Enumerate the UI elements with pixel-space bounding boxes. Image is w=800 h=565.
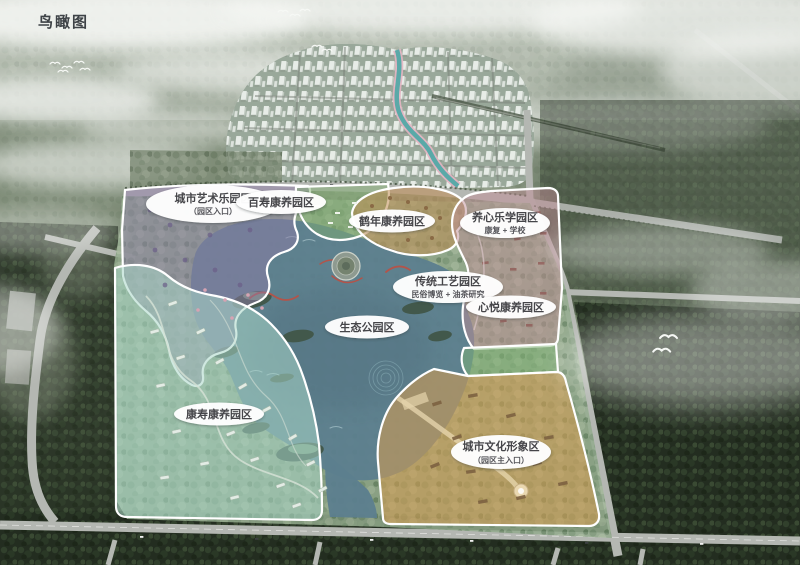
zone-subtitle: 康复 + 学校 bbox=[484, 225, 526, 235]
zone-label-baishou: 百寿康养园区 bbox=[236, 190, 326, 214]
masterplan-aerial-view: 城市艺术乐园区 （园区入口） 百寿康养园区 鹤年康养园区 养心乐学园区 康复 +… bbox=[0, 0, 800, 565]
zone-name: 城市文化形象区 bbox=[463, 439, 540, 453]
birdseye-rendering: 城市艺术乐园区 （园区入口） 百寿康养园区 鹤年康养园区 养心乐学园区 康复 +… bbox=[0, 0, 800, 565]
amphitheater-island bbox=[332, 252, 360, 280]
zone-label-xinyue: 心悦康养园区 bbox=[466, 296, 556, 319]
zone-name: 传统工艺园区 bbox=[414, 274, 481, 288]
zone-subtitle: 民俗博览 + 油茶研究 bbox=[411, 289, 484, 299]
zone-label-kangshou: 康寿康养园区 bbox=[174, 403, 264, 426]
zone-label-shengtai: 生态公园区 bbox=[325, 316, 409, 339]
zone-label-wenhua: 城市文化形象区 （园区主入口） bbox=[451, 435, 551, 469]
zone-name: 康寿康养园区 bbox=[186, 407, 252, 421]
zone-name: 心悦康养园区 bbox=[478, 300, 544, 314]
zone-label-yangxin: 养心乐学园区 康复 + 学校 bbox=[460, 208, 550, 238]
zone-subtitle: （园区入口） bbox=[189, 206, 237, 216]
zone-label-henian: 鹤年康养园区 bbox=[349, 210, 435, 233]
zone-name: 鹤年康养园区 bbox=[359, 214, 425, 228]
page-title: 鸟瞰图 bbox=[38, 13, 89, 31]
road-city-east bbox=[527, 110, 530, 200]
zone-name: 百寿康养园区 bbox=[248, 195, 314, 209]
zone-green-strip bbox=[462, 344, 558, 376]
zone-name: 生态公园区 bbox=[340, 320, 395, 334]
zone-name: 养心乐学园区 bbox=[471, 210, 538, 224]
zone-subtitle: （园区主入口） bbox=[473, 455, 529, 465]
